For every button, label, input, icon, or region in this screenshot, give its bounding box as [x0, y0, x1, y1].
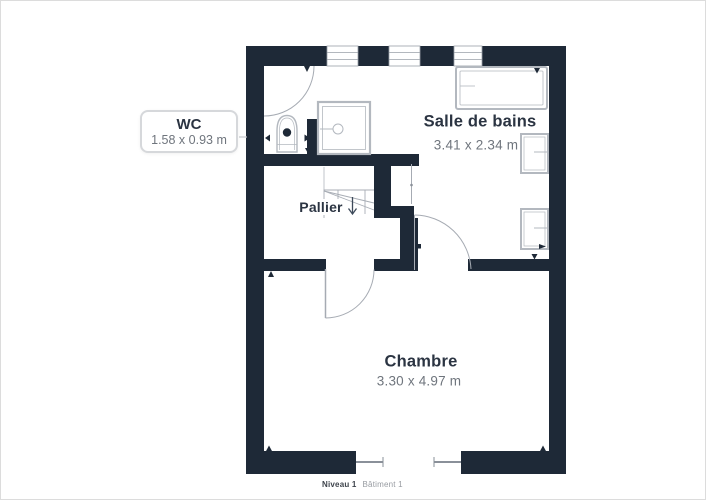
bathtub-inner: [460, 71, 543, 105]
bottom-opening: [356, 457, 461, 467]
door-marker: [265, 135, 270, 142]
mid-wall-right: [468, 259, 566, 271]
footer-level-label: Niveau 1: [322, 480, 357, 489]
chambre-name: Chambre: [385, 353, 458, 372]
footer-building-label: Bâtiment 1: [363, 480, 403, 489]
sink-upper-outer: [521, 134, 548, 173]
top-wall-segment-3: [420, 46, 454, 66]
top-wall-segment-2: [358, 46, 389, 66]
wc-bottom-wall: [246, 154, 419, 166]
shower-drain: [333, 124, 343, 134]
pallier-name: Pallier: [297, 199, 344, 215]
floorplan-drawing: [1, 1, 706, 500]
chambre-dimensions: 3.30 x 4.97 m: [377, 374, 461, 389]
chambre-label[interactable]: Chambre: [385, 353, 458, 372]
sink-upper-inner: [524, 137, 545, 170]
plan-footer: Niveau 1 Bâtiment 1: [322, 480, 403, 489]
door-marker: [304, 66, 310, 72]
sink-lower-inner: [524, 212, 545, 246]
door-marker: [540, 446, 547, 453]
window-3: [454, 46, 482, 66]
door-marker: [266, 446, 273, 453]
floorplan-page: WC 1.58 x 0.93 m Salle de bains 3.41 x 2…: [0, 0, 706, 500]
mid-wall-left: [246, 259, 326, 271]
closet-door-hinge: [410, 184, 413, 187]
bathroom-door-arc: [415, 215, 472, 269]
salle-de-bains-dimensions-label: 3.41 x 2.34 m: [434, 138, 518, 153]
pallier-label[interactable]: Pallier: [297, 199, 344, 215]
toilet-flush-dot: [283, 128, 291, 136]
wc-door-arc: [264, 66, 314, 116]
window-1: [327, 46, 358, 66]
wc-room-name: WC: [177, 116, 202, 133]
door-marker: [532, 254, 538, 260]
closet-wall-top: [374, 206, 414, 218]
doors: [264, 66, 471, 318]
mid-wall-center: [374, 259, 418, 271]
door-stop: [417, 244, 422, 249]
chambre-dimensions-label: 3.30 x 4.97 m: [377, 374, 461, 389]
shower-tray-inner: [323, 107, 366, 150]
salle-de-bains-dimensions: 3.41 x 2.34 m: [434, 138, 518, 153]
shower-tray-outer: [318, 102, 370, 154]
walls: [246, 46, 566, 474]
bottom-wall-right: [461, 451, 566, 474]
window-2: [389, 46, 420, 66]
door-marker: [268, 271, 274, 277]
bottom-wall-left: [246, 451, 356, 474]
windows: [327, 46, 482, 66]
stair-direction-arrow: [349, 197, 357, 214]
chambre-door-arc: [326, 270, 375, 319]
wc-room-callout[interactable]: WC 1.58 x 0.93 m: [140, 110, 238, 153]
salle-de-bains-name: Salle de bains: [424, 113, 537, 132]
salle-de-bains-label[interactable]: Salle de bains: [424, 113, 537, 132]
sink-lower-outer: [521, 209, 548, 249]
bathtub-outer: [456, 67, 547, 109]
wc-room-dimensions: 1.58 x 0.93 m: [151, 133, 227, 148]
